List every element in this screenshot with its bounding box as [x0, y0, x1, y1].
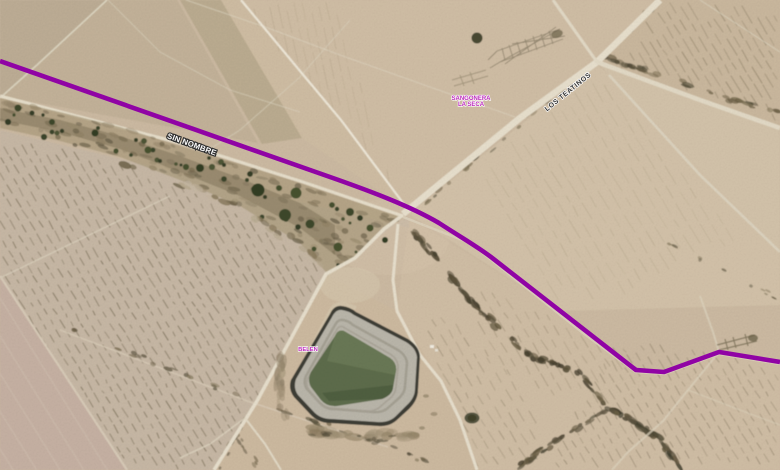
svg-text:BELEN: BELEN	[298, 347, 318, 353]
svg-text:LA SECA: LA SECA	[458, 102, 485, 108]
